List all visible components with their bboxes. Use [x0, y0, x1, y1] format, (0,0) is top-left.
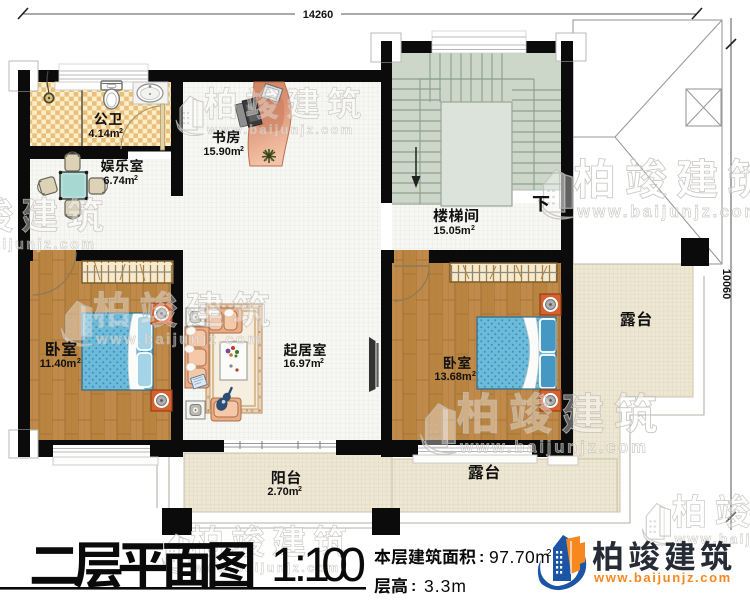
svg-text:2: 2: [119, 128, 123, 135]
svg-text:6.74m: 6.74m: [103, 175, 134, 187]
svg-text:2: 2: [320, 358, 324, 365]
svg-text:2.70m: 2.70m: [267, 486, 298, 498]
svg-text:2: 2: [471, 225, 475, 232]
svg-text:15.90m: 15.90m: [203, 146, 241, 158]
svg-text:2: 2: [134, 175, 138, 182]
svg-text:4.14m: 4.14m: [88, 128, 119, 140]
svg-text:2: 2: [77, 358, 81, 365]
svg-text::: :: [479, 549, 484, 566]
svg-text:2: 2: [472, 371, 476, 378]
svg-text:15.05m: 15.05m: [433, 225, 471, 237]
svg-text:13.68m: 13.68m: [434, 371, 472, 383]
svg-text:3.3m: 3.3m: [424, 576, 467, 596]
svg-text:2: 2: [240, 146, 244, 153]
svg-text:2: 2: [298, 486, 302, 493]
svg-text:2: 2: [546, 548, 552, 559]
svg-text::: :: [411, 578, 416, 595]
svg-text:www.baijunjz.com: www.baijunjz.com: [593, 570, 732, 585]
svg-text:16.97m: 16.97m: [283, 358, 321, 370]
svg-text:97.70m: 97.70m: [489, 547, 550, 567]
svg-text:10060: 10060: [720, 269, 732, 300]
svg-text:1 : 100: 1 : 100: [271, 539, 366, 592]
svg-text:14260: 14260: [303, 9, 334, 21]
svg-text:11.40m: 11.40m: [40, 358, 77, 370]
